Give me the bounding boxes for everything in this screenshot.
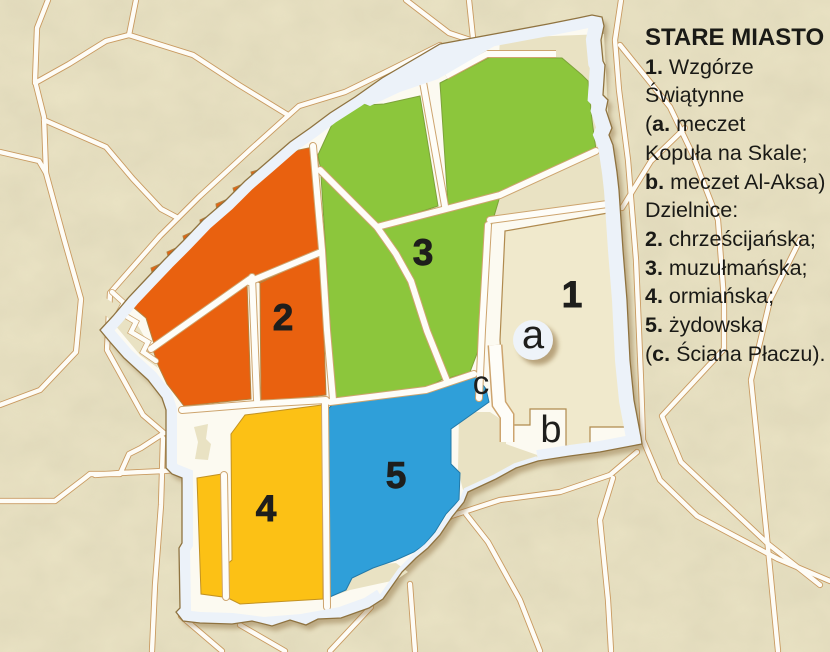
svg-text:2: 2 (273, 297, 294, 338)
svg-text:5: 5 (386, 455, 407, 496)
svg-text:a: a (522, 313, 545, 357)
svg-text:3: 3 (413, 232, 434, 273)
svg-text:c: c (473, 364, 490, 401)
svg-text:1: 1 (562, 274, 583, 315)
svg-text:b: b (540, 409, 561, 451)
svg-text:4: 4 (256, 488, 277, 529)
